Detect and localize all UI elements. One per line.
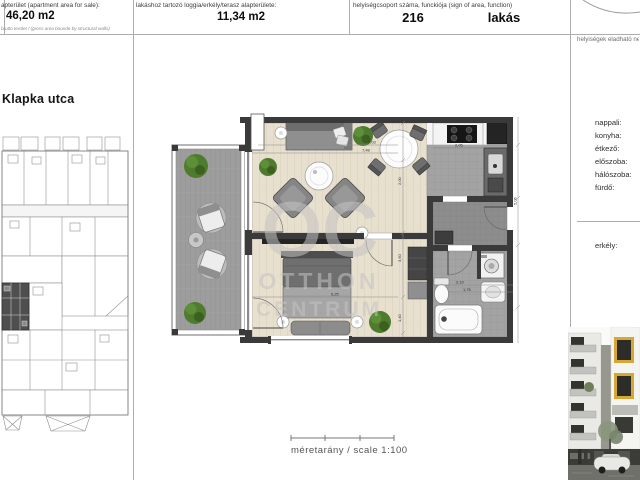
watermark-centrum: CENTRUM (256, 298, 382, 321)
highlighted-unit (2, 283, 29, 330)
left-building (568, 333, 601, 449)
washing-machine (479, 253, 504, 278)
apartment-area-note: brutto terület / (gross area bounde by s… (1, 26, 110, 31)
scale-label: méretarány / scale 1:100 (291, 445, 408, 456)
field-unit-function: helyiségcsoport száma, funckiója (sign o… (349, 0, 570, 34)
right-panel-title: helyiségek eladható ne (577, 36, 639, 43)
site-key-plan (0, 135, 133, 435)
unit-number: 216 (367, 10, 459, 25)
side-table (275, 127, 287, 139)
room-label-konyha: konyha: (595, 131, 622, 140)
svg-text:1,40: 1,40 (397, 313, 402, 322)
bedroom-bench (291, 321, 350, 335)
watermark-otthon: OTTHON (258, 268, 379, 294)
building-render-photo (568, 327, 640, 480)
terrace (172, 145, 245, 335)
unit-function-label: helyiségcsoport száma, funckiója (sign o… (353, 2, 512, 9)
svg-text:7,03: 7,03 (368, 140, 377, 145)
floorplan-sheet: apterület (apartment area for sale): 46,… (0, 0, 640, 480)
watermark-oc: OC (262, 185, 379, 273)
room-list-divider (577, 221, 640, 222)
kitchen-sink (488, 154, 503, 174)
svg-text:5,06: 5,06 (513, 196, 518, 205)
field-balcony-area: lakáshoz tartozó loggia/erkély/terasz al… (133, 0, 349, 34)
balcony-area-value: 11,34 m2 (133, 11, 349, 23)
svg-text:2,00: 2,00 (397, 176, 402, 185)
apartment-floor-plan: 7,03 7,48 5,25 2,10 1,75 2,05 2,00 3,50 … (140, 50, 540, 460)
balcony-area-label: lakáshoz tartozó loggia/erkély/terasz al… (136, 2, 276, 9)
svg-text:2,05: 2,05 (455, 143, 464, 148)
room-label-nappali: nappali: (595, 118, 622, 127)
toilet (434, 278, 449, 304)
room-label-etkezo: étkező: (595, 144, 619, 153)
unit-function: lakás (461, 10, 547, 25)
left-panel-divider (133, 0, 134, 480)
hall-cabinet (435, 231, 453, 244)
apartment-area-value: 46,20 m2 (6, 10, 55, 22)
svg-text:2,10: 2,10 (456, 280, 465, 285)
svg-text:7,48: 7,48 (362, 148, 371, 153)
svg-text:3,50: 3,50 (397, 253, 402, 262)
north-circle-arc (575, 0, 640, 20)
room-label-furdo: fürdő: (595, 183, 614, 192)
terrace-side-table (189, 233, 204, 248)
fridge (487, 121, 507, 144)
street-label: Klapka utca (2, 92, 74, 106)
scale-bar: méretarány / scale 1:100 (291, 435, 408, 456)
room-label-eloszoba: előszoba: (595, 157, 628, 166)
titleblock-divider (0, 34, 640, 35)
room-label-erkely: erkély: (595, 241, 617, 250)
bathtub (435, 305, 482, 334)
sofa (286, 123, 352, 150)
watermark: OC OTTHON CENTRUM (256, 185, 382, 321)
room-label-haloszoba: hálószoba: (595, 170, 632, 179)
wardrobe (408, 247, 427, 299)
svg-text:1,75: 1,75 (463, 287, 472, 292)
cooktop (447, 125, 477, 143)
field-apartment-area: apterület (apartment area for sale): 46,… (0, 0, 133, 34)
apartment-area-label: apterület (apartment area for sale): (1, 2, 100, 9)
wall-pillar (251, 114, 264, 150)
